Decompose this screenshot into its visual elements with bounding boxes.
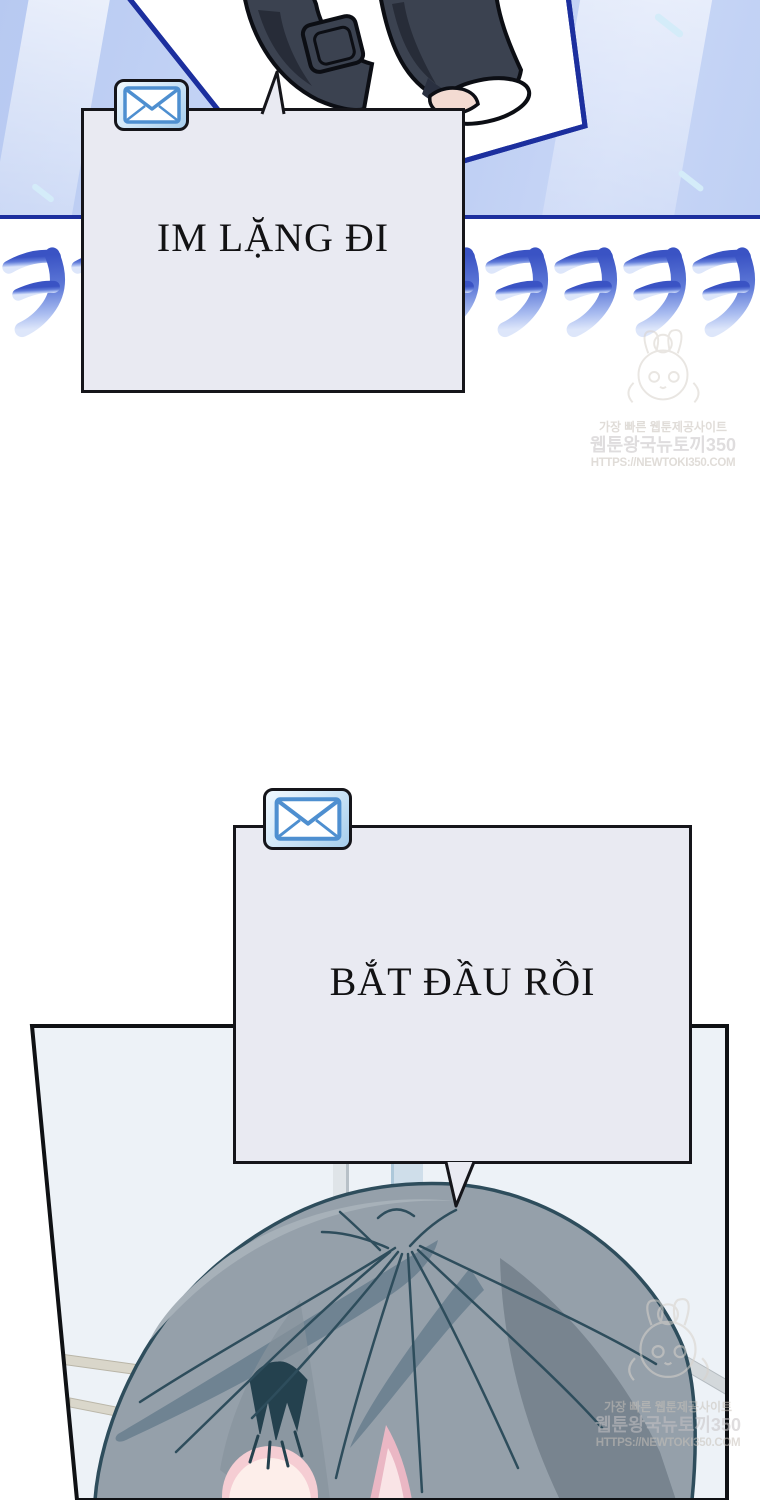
mail-envelope-icon [114, 79, 189, 131]
laugh-glyph [698, 255, 750, 330]
chibi-mascot-sketch [603, 322, 723, 420]
speech-text: IM LẶNG ĐI [157, 214, 389, 261]
watermark-line2: 웹툰왕국뉴토끼350 [578, 435, 748, 456]
mail-envelope-icon [263, 788, 352, 850]
speech-bubble-tail-up [250, 64, 295, 116]
watermark-line3: HTTPS://NEWTOKI350.COM [583, 1436, 753, 1450]
laugh-glyph [491, 255, 543, 330]
speech-bubble-tail-down [438, 1160, 486, 1212]
speech-text: BẮT ĐẦU RỒI [330, 958, 596, 1005]
webtoon-page: IM LẶNG ĐI 가장 빠른 웹툰제공사이트 웹툰왕국 [0, 0, 760, 1500]
envelope-glyph [272, 795, 344, 843]
speech-bubble-started: BẮT ĐẦU RỒI [233, 825, 692, 1164]
speech-bubble-quiet: IM LẶNG ĐI [81, 108, 465, 393]
watermark-line3: HTTPS://NEWTOKI350.COM [578, 456, 748, 470]
site-watermark: 가장 빠른 웹툰제공사이트 웹툰왕국뉴토끼350 HTTPS://NEWTOKI… [583, 1290, 753, 1450]
laugh-glyph [629, 255, 681, 330]
watermark-line2: 웹툰왕국뉴토끼350 [583, 1415, 753, 1436]
watermark-line1: 가장 빠른 웹툰제공사이트 [578, 420, 748, 435]
knee-pad [301, 14, 365, 74]
envelope-glyph [121, 85, 183, 125]
site-watermark: 가장 빠른 웹툰제공사이트 웹툰왕국뉴토끼350 HTTPS://NEWTOKI… [578, 322, 748, 470]
watermark-line1: 가장 빠른 웹툰제공사이트 [583, 1400, 753, 1415]
chibi-mascot-sketch [603, 1290, 733, 1400]
laugh-glyph [560, 255, 612, 330]
laugh-glyph [8, 255, 60, 330]
